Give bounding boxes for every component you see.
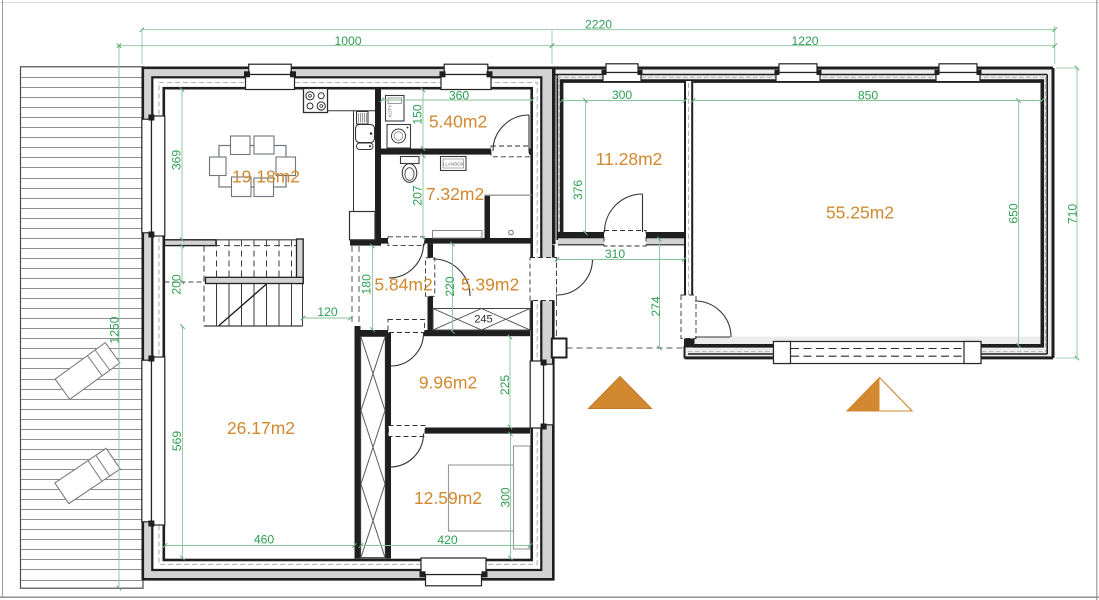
svg-text:12.59m2: 12.59m2: [414, 488, 482, 508]
svg-text:460: 460: [254, 532, 275, 546]
svg-text:2220: 2220: [585, 17, 612, 31]
svg-text:207: 207: [410, 185, 424, 206]
svg-text:420: 420: [437, 533, 458, 547]
svg-text:KOTY: KOTY: [388, 105, 393, 117]
svg-text:LLANBOX: LLANBOX: [443, 161, 464, 166]
svg-text:225: 225: [498, 375, 512, 396]
svg-text:376: 376: [571, 180, 585, 201]
svg-text:220: 220: [443, 276, 457, 297]
svg-text:11.28m2: 11.28m2: [596, 149, 663, 169]
svg-text:650: 650: [1006, 203, 1020, 224]
svg-text:710: 710: [1065, 204, 1079, 225]
svg-text:5.84m2: 5.84m2: [374, 275, 432, 295]
svg-text:5.40m2: 5.40m2: [429, 112, 487, 132]
svg-text:569: 569: [170, 431, 184, 452]
svg-text:245: 245: [474, 314, 492, 326]
svg-text:5.39m2: 5.39m2: [461, 275, 519, 295]
svg-text:200: 200: [169, 274, 183, 295]
svg-text:1250: 1250: [107, 316, 121, 343]
svg-text:9.96m2: 9.96m2: [419, 373, 477, 393]
svg-text:26.17m2: 26.17m2: [227, 418, 295, 438]
svg-text:1000: 1000: [334, 34, 361, 48]
svg-text:1220: 1220: [791, 34, 818, 48]
svg-text:369: 369: [169, 150, 183, 171]
svg-text:150: 150: [410, 104, 424, 125]
svg-text:300: 300: [498, 487, 512, 508]
svg-text:274: 274: [649, 296, 663, 317]
svg-text:300: 300: [612, 88, 633, 102]
svg-text:850: 850: [858, 88, 879, 102]
svg-text:360: 360: [449, 88, 470, 102]
svg-text:180: 180: [359, 274, 373, 295]
svg-text:120: 120: [317, 305, 338, 319]
svg-text:310: 310: [605, 247, 626, 261]
svg-text:19.18m2: 19.18m2: [232, 167, 300, 187]
svg-text:7.32m2: 7.32m2: [426, 184, 484, 204]
svg-text:55.25m2: 55.25m2: [826, 203, 894, 223]
